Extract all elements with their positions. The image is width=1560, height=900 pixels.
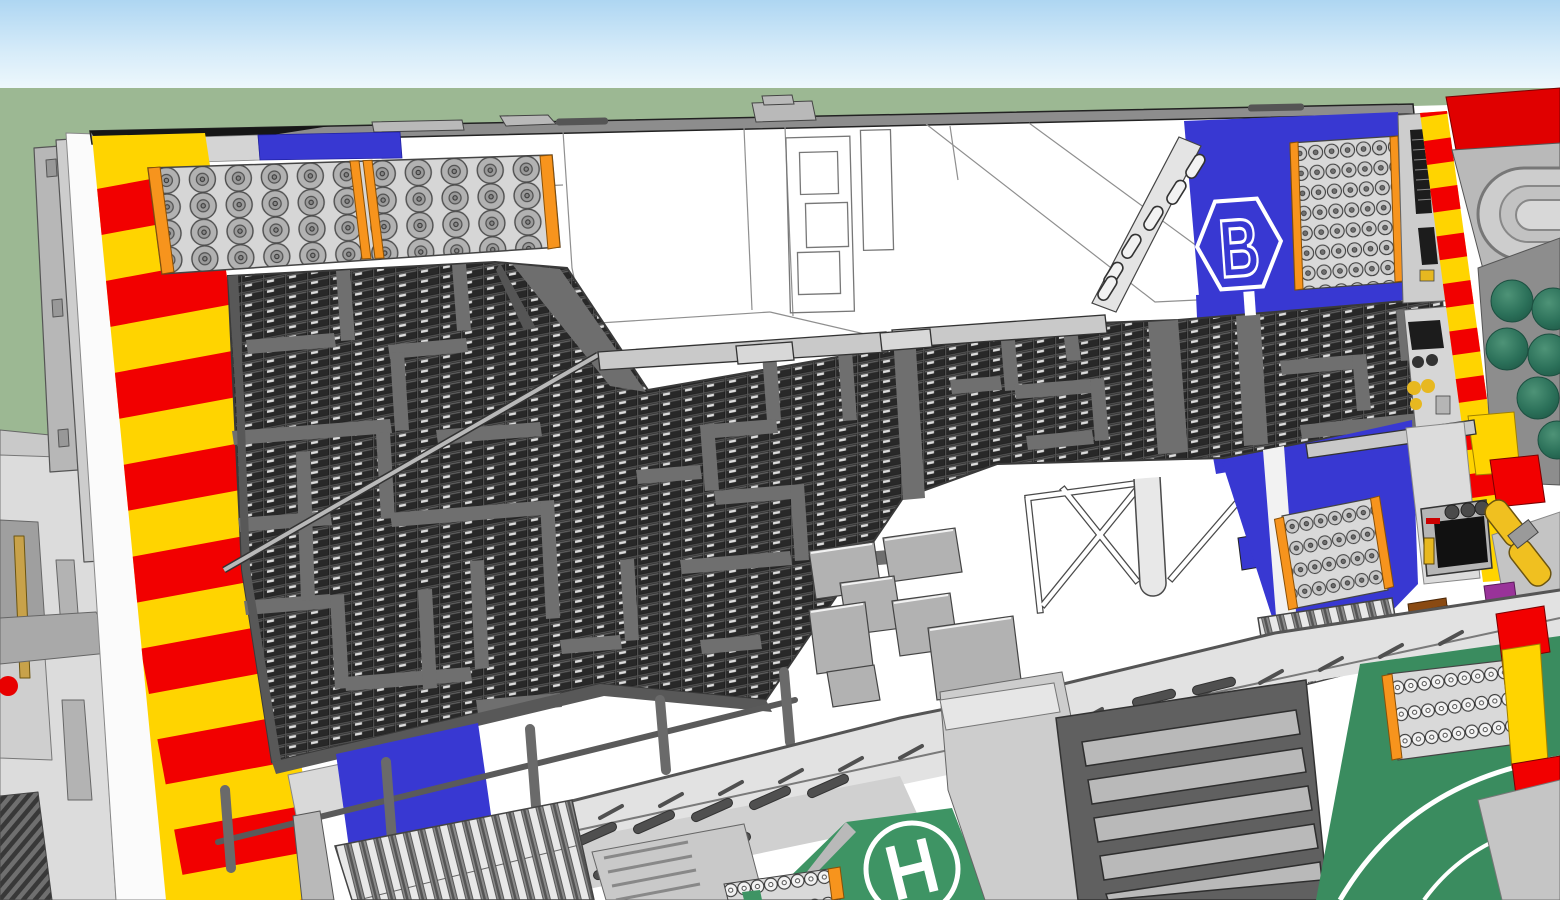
svg-text:B: B bbox=[1216, 202, 1262, 296]
